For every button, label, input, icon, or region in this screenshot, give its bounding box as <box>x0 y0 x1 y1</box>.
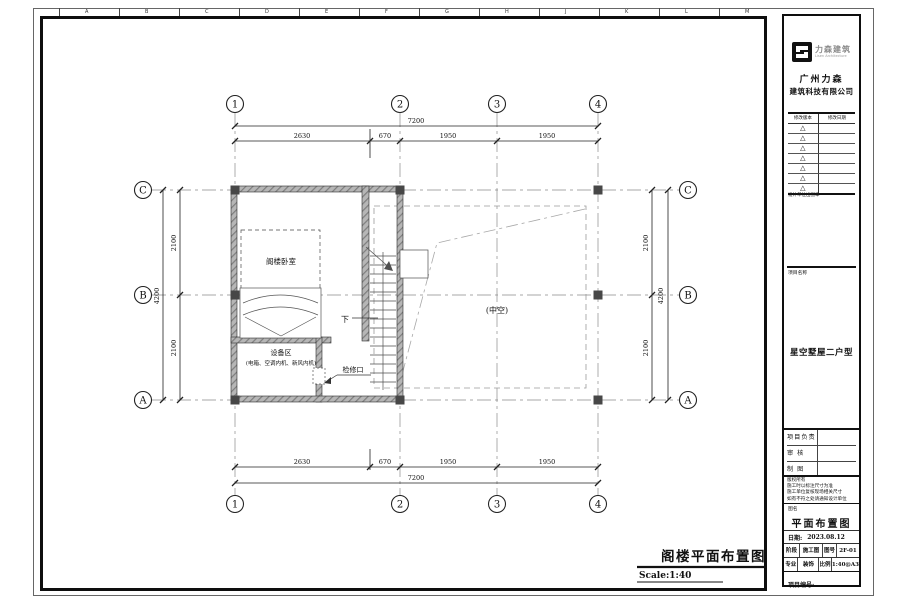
wall-top <box>231 186 403 192</box>
axis-bubble-label: 3 <box>494 500 500 511</box>
sheet-no-label: 图号 <box>823 544 837 558</box>
revision-row: △ <box>788 134 855 144</box>
axis-bubbles: 1 2 3 4 1 2 3 4 C B A C B A <box>135 96 697 513</box>
logo-name: 力森建筑 <box>815 46 851 54</box>
axis-bubble-label: 4 <box>595 500 601 511</box>
access-label: 检修口 <box>343 365 364 374</box>
stage-label: 阶段 <box>784 544 800 558</box>
dim-label: 670 <box>379 458 391 466</box>
sheet-scale: Scale:1:40 <box>639 571 691 581</box>
role-row: 项目负责 <box>787 430 856 446</box>
note-line: 如有不符之处请通知设计单位 <box>787 497 857 503</box>
date-label: 日期: <box>788 533 802 542</box>
company-name-line2: 建筑科技有限公司 <box>784 86 859 97</box>
logo-text: 力森建筑 Lisen Architecture <box>815 46 851 59</box>
floor-plan: 阁楼卧室 设备区 (电箱、空调内机、新风内机) 检修口 (中空) 下 7200 … <box>0 0 900 600</box>
title-block: 力森建筑 Lisen Architecture 广州力森 建筑科技有限公司 修改… <box>782 14 861 587</box>
discipline-label: 专业 <box>784 558 798 572</box>
equipment-detail-label: (电箱、空调内机、新风内机) <box>246 359 316 367</box>
dim-label: 7200 <box>408 474 425 482</box>
dim-label: 4200 <box>657 288 665 305</box>
revision-date-cell <box>819 174 855 183</box>
company-logo-icon <box>792 42 812 62</box>
revision-date-cell <box>819 144 855 153</box>
dimension-lines <box>163 126 668 483</box>
logo-subtitle: Lisen Architecture <box>815 55 851 59</box>
revision-version-header: 修改版本 <box>788 114 819 123</box>
dim-label: 7200 <box>408 117 425 125</box>
equipment-label: 设备区 <box>271 348 292 357</box>
void-label: (中空) <box>486 305 508 315</box>
roles-table: 项目负责审 核制 图 <box>787 430 856 477</box>
revision-date-cell <box>819 124 855 133</box>
revision-triangle-icon: △ <box>788 154 819 163</box>
role-label: 项目负责 <box>787 430 817 445</box>
project-name-label: 项目名称 <box>788 269 863 276</box>
access-leader-line <box>326 375 371 382</box>
logo-row: 力森建筑 Lisen Architecture <box>784 42 859 62</box>
dim-label: 2100 <box>170 340 178 357</box>
revision-table: 修改版本 修改日期 △△△△△△△ <box>788 112 855 195</box>
revision-triangle-icon: △ <box>788 124 819 133</box>
wall-stair-right <box>397 186 403 402</box>
revision-row: △ <box>788 154 855 164</box>
revision-row: △ <box>788 144 855 154</box>
dim-label: 1950 <box>440 132 457 140</box>
role-value-cell <box>817 430 856 445</box>
void-boundary <box>374 206 586 388</box>
axis-bubble-label: 1 <box>232 100 238 111</box>
bed-furniture <box>240 288 321 338</box>
scale-label: 比例 <box>819 558 832 572</box>
stage-row: 阶段 施工图 图号 2F-01 <box>784 543 859 558</box>
stair-arrowhead <box>384 261 393 271</box>
revision-row: △ <box>788 124 855 134</box>
revision-triangle-icon: △ <box>788 164 819 173</box>
revision-row: △ <box>788 164 855 174</box>
revision-rows: △△△△△△△ <box>788 124 855 193</box>
scale-value: 1:40@A3 <box>832 558 859 572</box>
axis-bubble-label: B <box>139 291 146 302</box>
wall-bottom <box>231 396 403 402</box>
sheet-title: 阁楼平面布置图 <box>661 548 766 565</box>
dim-label: 670 <box>379 132 391 140</box>
void-diagonal-line <box>399 209 585 386</box>
divider <box>784 475 859 477</box>
dim-label: 1950 <box>539 132 556 140</box>
sheet-title-group: 阁楼平面布置图 Scale:1:40 <box>637 548 766 582</box>
axis-bubble-label: 2 <box>397 100 403 111</box>
stage-value: 施工图 <box>800 544 823 558</box>
project-no-label: 项目编号: <box>788 582 814 589</box>
dim-label: 2630 <box>294 458 311 466</box>
dim-label: 2100 <box>642 235 650 252</box>
axis-bubble-label: 2 <box>397 500 403 511</box>
discipline-row: 专业 装饰 比例 1:40@A3 <box>784 557 859 572</box>
bedroom-label: 阁楼卧室 <box>266 256 296 266</box>
drawing-name-label: 图名 <box>788 505 863 512</box>
company-name-line1: 广州力森 <box>784 72 859 85</box>
revision-date-header: 修改日期 <box>819 114 855 123</box>
divider <box>787 266 856 268</box>
revision-triangle-icon: △ <box>788 144 819 153</box>
revision-date-cell <box>819 154 855 163</box>
sheet-no-value: 2F-01 <box>837 544 859 558</box>
revision-date-cell <box>819 164 855 173</box>
axis-bubble-label: 1 <box>232 500 238 511</box>
revision-row: △ <box>788 174 855 184</box>
divider <box>784 503 859 504</box>
axis-bubble-label: C <box>139 186 147 197</box>
project-name: 星空墅屋二户型 <box>784 346 859 358</box>
axis-bubble-label: A <box>138 396 147 407</box>
down-label: 下 <box>341 315 349 324</box>
dimension-labels: 7200 2630 670 1950 1950 2630 670 1950 19… <box>153 117 665 482</box>
role-label: 审 核 <box>787 446 817 461</box>
revision-table-header: 修改版本 修改日期 <box>788 114 855 124</box>
dim-label: 2100 <box>170 235 178 252</box>
revision-triangle-icon: △ <box>788 174 819 183</box>
discipline-value: 装饰 <box>798 558 819 572</box>
revision-triangle-icon: △ <box>788 134 819 143</box>
dim-label: 1950 <box>440 458 457 466</box>
role-row: 审 核 <box>787 446 856 462</box>
date-row: 日期: 2023.08.12 <box>784 530 859 544</box>
project-no-row: 项目编号: <box>784 571 859 584</box>
axis-bubble-label: 4 <box>595 100 601 111</box>
dim-label: 2630 <box>294 132 311 140</box>
revision-date-cell <box>819 134 855 143</box>
axis-bubble-label: C <box>684 186 692 197</box>
axis-bubble-label: A <box>683 396 692 407</box>
dim-label: 4200 <box>153 288 161 305</box>
axis-bubble-label: B <box>684 291 691 302</box>
stamp-label: 设计单位出图章 <box>788 192 863 198</box>
access-opening <box>313 368 325 384</box>
date-value: 2023.08.12 <box>807 534 845 541</box>
role-value-cell <box>817 446 856 461</box>
dim-label: 1950 <box>539 458 556 466</box>
axis-bubble-label: 3 <box>494 100 500 111</box>
drawing-name: 平面布置图 <box>784 515 859 530</box>
notes-block: 版权所有施工时以标注尺寸为准施工单位复核现场相关尺寸如有不符之处请通知设计单位 <box>787 478 857 503</box>
dim-label: 2100 <box>642 340 650 357</box>
